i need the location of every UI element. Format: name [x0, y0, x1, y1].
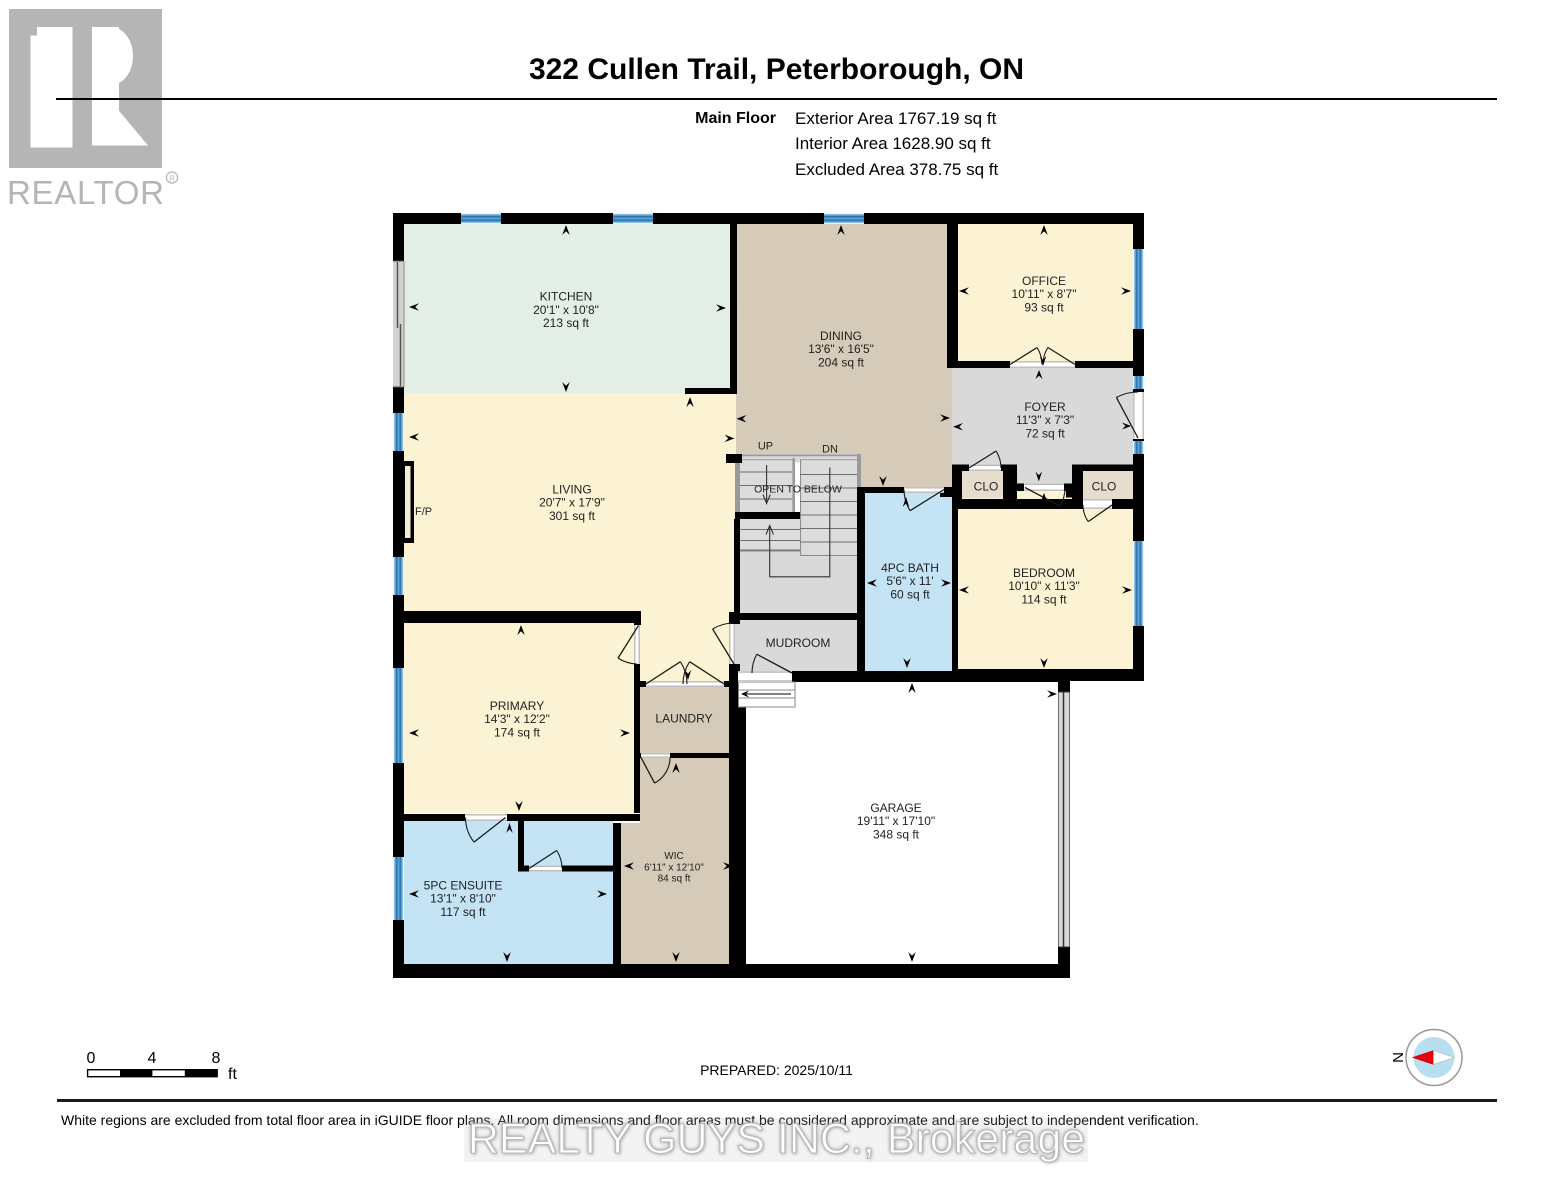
- svg-text:CLO: CLO: [974, 480, 999, 494]
- svg-text:14'3" x 12'2": 14'3" x 12'2": [484, 712, 550, 726]
- svg-text:114 sq ft: 114 sq ft: [1021, 592, 1067, 606]
- svg-text:13'1" x 8'10": 13'1" x 8'10": [430, 892, 496, 906]
- svg-text:KITCHEN: KITCHEN: [540, 290, 593, 304]
- svg-text:117 sq ft: 117 sq ft: [440, 905, 486, 919]
- svg-text:5PC ENSUITE: 5PC ENSUITE: [424, 879, 503, 893]
- svg-text:11'3" x 7'3": 11'3" x 7'3": [1016, 413, 1074, 427]
- svg-text:60 sq ft: 60 sq ft: [890, 587, 930, 601]
- svg-text:10'10" x 11'3": 10'10" x 11'3": [1008, 579, 1080, 593]
- svg-text:GARAGE: GARAGE: [870, 801, 921, 815]
- svg-text:6'11" x 12'10": 6'11" x 12'10": [644, 862, 704, 873]
- svg-text:DN: DN: [822, 444, 838, 456]
- svg-text:UP: UP: [758, 441, 773, 453]
- svg-text:LIVING: LIVING: [552, 483, 591, 497]
- svg-text:OPEN TO BELOW: OPEN TO BELOW: [754, 484, 842, 496]
- svg-text:13'6" x 16'5": 13'6" x 16'5": [808, 342, 874, 356]
- svg-text:OFFICE: OFFICE: [1022, 274, 1066, 288]
- svg-text:20'1" x 10'8": 20'1" x 10'8": [533, 303, 599, 317]
- svg-text:93 sq ft: 93 sq ft: [1024, 300, 1064, 314]
- svg-text:72 sq ft: 72 sq ft: [1025, 426, 1065, 440]
- svg-text:CLO: CLO: [1092, 480, 1117, 494]
- svg-text:DINING: DINING: [820, 329, 862, 343]
- svg-text:LAUNDRY: LAUNDRY: [655, 712, 712, 726]
- svg-text:20'7" x 17'9": 20'7" x 17'9": [539, 496, 605, 510]
- svg-text:BEDROOM: BEDROOM: [1013, 566, 1075, 580]
- svg-text:5'6" x 11': 5'6" x 11': [886, 574, 933, 588]
- svg-text:N: N: [1390, 1052, 1407, 1063]
- svg-text:204 sq ft: 204 sq ft: [818, 355, 865, 369]
- svg-text:PRIMARY: PRIMARY: [490, 699, 544, 713]
- svg-text:84 sq ft: 84 sq ft: [658, 874, 691, 885]
- svg-text:F/P: F/P: [415, 506, 432, 518]
- svg-text:MUDROOM: MUDROOM: [766, 636, 831, 650]
- svg-text:WIC: WIC: [664, 851, 683, 862]
- svg-text:348 sq ft: 348 sq ft: [873, 827, 920, 841]
- svg-text:174 sq ft: 174 sq ft: [494, 725, 541, 739]
- svg-text:19'11" x 17'10": 19'11" x 17'10": [857, 814, 935, 828]
- svg-text:4PC BATH: 4PC BATH: [881, 561, 939, 575]
- svg-text:301 sq ft: 301 sq ft: [549, 509, 596, 523]
- svg-text:10'11" x 8'7": 10'11" x 8'7": [1012, 287, 1077, 301]
- svg-text:FOYER: FOYER: [1024, 400, 1066, 414]
- svg-text:213 sq ft: 213 sq ft: [543, 316, 590, 330]
